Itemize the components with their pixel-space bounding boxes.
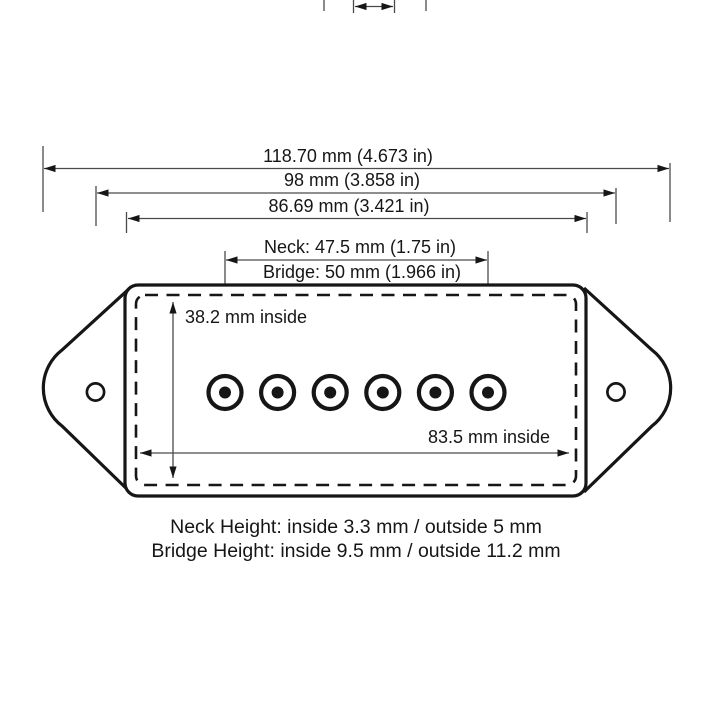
inside-width-label: 83.5 mm inside: [428, 427, 550, 448]
neck-spacing-label: Neck: 47.5 mm (1.75 in): [264, 237, 456, 258]
bridge-spacing-label: Bridge: 50 mm (1.966 in): [263, 262, 461, 283]
inside-height-label: 38.2 mm inside: [185, 307, 307, 328]
overall-width-label: 118.70 mm (4.673 in): [263, 146, 433, 167]
pole-piece-4: [366, 376, 399, 409]
neck-height-note: Neck Height: inside 3.3 mm / outside 5 m…: [170, 515, 542, 539]
mounting-hole-left: [87, 383, 104, 400]
body-width-label: 86.69 mm (3.421 in): [268, 196, 429, 217]
pole-piece-1: [209, 376, 242, 409]
pole-piece-6: [472, 376, 505, 409]
mounting-width-label: 98 mm (3.858 in): [284, 170, 420, 191]
diagram-canvas: 118.70 mm (4.673 in) 98 mm (3.858 in) 86…: [0, 0, 713, 713]
bridge-height-note: Bridge Height: inside 9.5 mm / outside 1…: [151, 539, 560, 563]
pole-piece-5: [419, 376, 452, 409]
mounting-hole-right: [607, 383, 624, 400]
pickup-cover-outline: [43, 285, 670, 496]
right-ear-outline: [584, 288, 671, 492]
pickup-dimensional-drawing: [0, 0, 713, 713]
top-view-fragment: [324, 0, 426, 13]
pole-piece-2: [261, 376, 294, 409]
pole-piece-3: [314, 376, 347, 409]
